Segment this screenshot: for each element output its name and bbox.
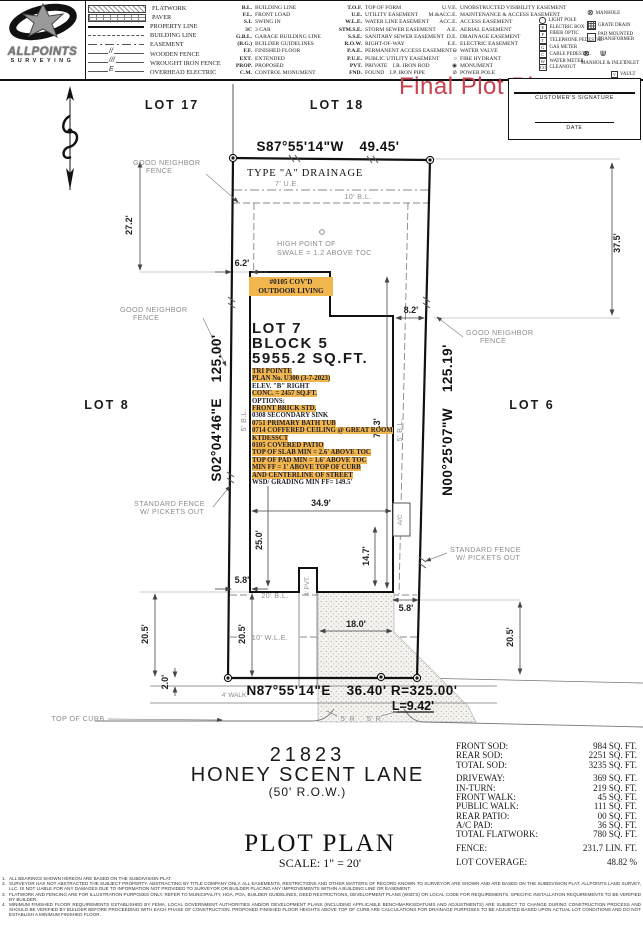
legend-abbrev-row: EXT. EXTENDED xyxy=(230,55,321,62)
lot-info-block: LOT 7 BLOCK 5 5955.2 SQ.FT. TRI POINTE P… xyxy=(252,321,384,487)
lot-area: 5955.2 SQ.FT. xyxy=(252,351,384,366)
legend-abbr: R.O.W. xyxy=(329,41,362,47)
option-line: 0714 COFFERED CEILING @ GREAT ROOM xyxy=(252,427,384,434)
option-text: CONC. = 2457 SQ.FT. xyxy=(252,390,317,397)
legend-label: INLET xyxy=(625,61,639,66)
dim-8-2: 8.2' xyxy=(404,305,419,315)
dim-20-5-mid: 20.5' xyxy=(237,624,247,644)
legend-label: VAULT xyxy=(620,72,636,77)
legend-abbr: U.E. xyxy=(329,12,362,18)
lot18-label: LOT 18 xyxy=(310,98,364,112)
arc-length-label: L=9.42' xyxy=(392,699,434,713)
high-point-marker xyxy=(320,230,325,235)
option-text: KTDESSCT xyxy=(252,435,288,442)
ue7-label: 7' U.E. xyxy=(275,179,299,188)
legend-label: ACCESS EASEMENT xyxy=(460,19,512,25)
standard-fence-right-2: W/ PICKETS OUT xyxy=(456,553,521,562)
note-item: 3. FLATWORK AND FENCING ARE FOR ILLUSTRA… xyxy=(2,892,641,902)
radius-5r-left: 5' R xyxy=(341,714,355,723)
legend-label: GRATE DRAIN xyxy=(598,23,630,28)
survey-notes: 1. ALL BEARINGS SHOWN HEREON ARE BASED O… xyxy=(2,876,641,918)
legend-abbr: P.U.E. xyxy=(329,56,362,62)
options-list: TRI POINTE PLAN No. U300 (3-7-2023) ELEV… xyxy=(252,368,384,487)
legend-label: PROPERTY LINE xyxy=(150,23,198,30)
note-number: 3. xyxy=(2,892,9,902)
legend-label: FINISHED FLOOR xyxy=(255,48,300,54)
legend-abbr-or-symbol: ⊖ xyxy=(419,48,457,54)
standard-fence-left-2: W/ PICKETS OUT xyxy=(140,507,205,516)
legend-abbrev-col1: B.L. BUILDING LINE F.L. FRONT LOAD S.I. … xyxy=(230,4,321,77)
linetype-swatch-icon xyxy=(88,5,146,13)
plot-plan-title-block: PLOT PLAN SCALE: 1" = 20' xyxy=(170,831,470,870)
legend-abbr: STM.S.E. xyxy=(329,27,362,33)
legend-label: PAD MOUNTEDTRANSFORMER xyxy=(598,32,634,42)
legend-label: WOODEN FENCE xyxy=(150,51,200,58)
area-summary-table: FRONT SOD: 984 SQ. FT. REAR SOD: 2251 SQ… xyxy=(456,742,637,867)
legend-abbr: (B.G.) xyxy=(230,41,252,47)
legend-panel: ALLPOINTS SURVEYING FLATWORK PAVER PROPE… xyxy=(0,0,643,81)
dim-25-0: 25.0' xyxy=(254,530,264,550)
option-line: CONC. = 2457 SQ.FT. xyxy=(252,390,384,397)
legend-label: FLATWORK xyxy=(152,5,186,12)
dim-20-5-right: 20.5' xyxy=(505,627,515,647)
legend-label: GARAGE BUILDING LINE xyxy=(255,34,321,40)
option-text: TRI POINTE xyxy=(252,368,292,375)
legend-abbrev-row: 3C 3 CAR xyxy=(230,26,321,33)
legend-label: TOP OF FORM xyxy=(365,5,401,11)
legend-label: MANHOLE xyxy=(596,11,620,16)
option-text: TOP OF SLAB MIN = 2.6' ABOVE TOC xyxy=(252,449,371,456)
legend-abbrev-row: C.M. CONTROL MONUMENT xyxy=(230,70,321,77)
signature-line[interactable] xyxy=(514,92,635,94)
walk4-label: 4' WALK xyxy=(222,692,247,699)
type-a-drainage-label: TYPE "A" DRAINAGE xyxy=(247,168,363,179)
signature-box: CUSTOMER'S SIGNATURE DATE xyxy=(508,78,641,140)
legend-label: UNOBSTRUCTED VISIBILITY EASEMENT xyxy=(460,5,566,11)
dim-37-5: 37.5' xyxy=(612,233,622,253)
legend-label: BUILDING LINE xyxy=(150,32,196,39)
table-row-value: 231.7 LIN. FT. xyxy=(583,844,637,853)
legend-label: PROPOSED xyxy=(255,63,284,69)
good-neighbor-fence-top-2: FENCE xyxy=(146,166,172,175)
note-item: 4. MINIMUM FINISHED FLOOR REQUIREMENTS E… xyxy=(2,902,641,918)
table-row: TOTAL SOD: 3235 SQ. FT. xyxy=(456,761,637,770)
legend-abbrev-row: (B.G.) BUILDER GUIDELINES xyxy=(230,40,321,47)
legend-label: UTILITY EASEMENT xyxy=(365,12,418,18)
legend-label: RIGHT-OF-WAY xyxy=(365,41,405,47)
option-text: WSD/ GRADING MIN FF= 149.5' xyxy=(252,479,352,486)
note-item: 2. SURVEYOR HAS NOT ABSTRACTED THE SUBJE… xyxy=(2,881,641,891)
high-point-label-1: HIGH POINT OF xyxy=(277,239,336,248)
plot-plan-scale: SCALE: 1" = 20' xyxy=(170,856,470,870)
option-line: 0308 SECONDARY SINK xyxy=(252,412,384,419)
bl5-right-label: 5' B.L. xyxy=(395,419,404,442)
legend-label: CONTROL MONUMENT xyxy=(255,70,316,76)
option-text: 0105 COVERED PATIO xyxy=(252,442,324,449)
date-label: DATE xyxy=(509,125,640,131)
lot6-label: LOT 6 xyxy=(509,398,554,412)
good-neighbor-fence-right-2: FENCE xyxy=(480,336,506,345)
top-of-curb-label: TOP OF CURB xyxy=(51,714,104,723)
legend-label: GAS METER xyxy=(550,45,578,50)
right-bearing-label: N00°25'07"W 125.19' xyxy=(440,344,455,496)
option-line: FRONT BRICK STD. xyxy=(252,405,384,412)
legend-linetypes: FLATWORK PAVER PROPERTY LINE BUILDING LI… xyxy=(88,4,221,77)
option-line: 0751 PRIMARY BATH TUB xyxy=(252,420,384,427)
legend-abbr: T.O.F. xyxy=(329,5,362,11)
legend-abbr-or-symbol: ○ xyxy=(419,56,457,62)
logo-name: ALLPOINTS xyxy=(0,46,85,58)
option-text: AND CENTERLINE OF STREET xyxy=(252,472,353,479)
note-text: MINIMUM FINISHED FLOOR REQUIREMENTS ESTA… xyxy=(9,902,641,918)
legend-abbr: S.S.E. xyxy=(329,34,362,40)
street-address: 21823 HONEY SCENT LANE (50' R.O.W.) xyxy=(150,746,465,799)
legend-abbr: PVT. xyxy=(329,63,362,69)
manhole-icon: ⊗ xyxy=(587,9,594,17)
legend-abbrev-row: S.I. SWING IN xyxy=(230,19,321,26)
manhole-inlet-legend: MANHOLE & INLET xyxy=(581,61,626,66)
company-logo: ALLPOINTS SURVEYING xyxy=(0,1,86,79)
table-row-value: 780 SQ. FT. xyxy=(593,830,637,839)
outdoor-living-tag: #0105 COV'D OUTDOOR LIVING xyxy=(249,277,333,296)
legend-label: WATER VALVE xyxy=(460,48,498,54)
dim-2-0: 2.0' xyxy=(160,675,170,690)
legend-label: FRONT LOAD xyxy=(255,12,290,18)
option-line: 0105 COVERED PATIO xyxy=(252,442,384,449)
ac-label: A/C xyxy=(397,514,404,525)
legend-abbr: B.L. xyxy=(230,5,252,11)
bl5-left-label: 5' B.L. xyxy=(239,409,248,432)
legend-abbr-or-symbol: ◉ xyxy=(419,63,457,69)
option-line: OPTIONS: xyxy=(252,398,384,405)
legend-label: EXTENDED xyxy=(255,56,285,62)
signature-label: CUSTOMER'S SIGNATURE xyxy=(509,95,640,101)
plot-plan-title: PLOT PLAN xyxy=(170,831,470,856)
linetype-swatch-icon xyxy=(88,50,144,58)
table-row-value: 48.82 % xyxy=(607,858,637,867)
high-point-label-2: SWALE = 1.2 ABOVE TOC xyxy=(277,248,372,257)
legend-abbrev-row: F.L. FRONT LOAD xyxy=(230,11,321,18)
bl20-label: 20' B.L. xyxy=(261,591,288,600)
option-line: AND CENTERLINE OF STREET xyxy=(252,472,384,479)
legend-symbol-icon xyxy=(539,17,546,24)
dim-6-2: 6.2' xyxy=(235,258,250,268)
option-line: TRI POINTE xyxy=(252,368,384,375)
inlet-icon: ⋓ xyxy=(600,49,607,58)
lot-number: LOT 7 xyxy=(252,321,384,336)
transformer-legend: PAD MOUNTEDTRANSFORMER xyxy=(587,32,634,42)
option-text: 0751 PRIMARY BATH TUB xyxy=(252,420,336,427)
option-text: TOP OF PAD MIN = 1.6' ABOVE TOC xyxy=(252,457,367,464)
dim-27-2: 27.2' xyxy=(124,215,134,235)
option-line: KTDESSCT xyxy=(252,435,384,442)
legend-label: ELECTRIC EASEMENT xyxy=(460,41,518,47)
legend-symbol-icon: CO xyxy=(539,64,547,71)
legend-abbrev-row: G.B.L. GARAGE BUILDING LINE xyxy=(230,33,321,40)
legend-abbr-or-symbol: E.E. xyxy=(419,41,457,47)
dim-5-8-left: 5.8' xyxy=(235,575,250,585)
legend-label: EASEMENT xyxy=(150,41,184,48)
legend-abbr: C.M. xyxy=(230,70,252,76)
dim-14-7: 14.7' xyxy=(361,546,371,566)
legend-abbr: PROP. xyxy=(230,63,252,69)
legend-label: PAVER xyxy=(152,14,171,21)
legend-abbrev-row: F.F. FINISHED FLOOR xyxy=(230,48,321,55)
linetype-swatch-icon xyxy=(88,23,144,31)
legend-label: BUILDER GUIDELINES xyxy=(255,41,314,47)
legend-label: CLEANOUT xyxy=(550,65,576,70)
vault-legend: V VAULT xyxy=(611,71,636,78)
lot8-label: LOT 8 xyxy=(84,398,129,412)
legend-linetype-row: BUILDING LINE xyxy=(88,31,221,40)
street-number: 21823 xyxy=(150,746,465,765)
note-number: 4. xyxy=(2,902,9,918)
option-text: MIN FF = 1' ABOVE TOP OF CURB xyxy=(252,464,361,471)
dim-34-9: 34.9' xyxy=(311,498,331,508)
legend-label: AERIAL EASEMENT xyxy=(460,27,512,33)
inlet-legend: INLET xyxy=(625,61,639,66)
legend-abbr: P.A.E. xyxy=(329,48,362,54)
option-text: ELEV. "B" RIGHT xyxy=(252,383,309,390)
option-line: MIN FF = 1' ABOVE TOP OF CURB xyxy=(252,464,384,471)
pvt-walk-label: 4' PVT. xyxy=(304,576,311,596)
linetype-swatch-icon xyxy=(88,32,144,40)
legend-label: ELECTRIC BOX xyxy=(550,25,585,30)
legend-abbr: F.F. xyxy=(230,48,252,54)
legend-label: 3 CAR xyxy=(255,27,271,33)
legend-abbr: W.L.E. xyxy=(329,19,362,25)
option-line: ELEV. "B" RIGHT xyxy=(252,383,384,390)
legend-abbr-or-symbol: M.&ACC.E. xyxy=(419,12,457,18)
option-line: TOP OF SLAB MIN = 2.6' ABOVE TOC xyxy=(252,449,384,456)
legend-abbr-or-symbol: ACC.E. xyxy=(419,19,457,25)
good-neighbor-fence-left-2: FENCE xyxy=(133,313,159,322)
legend-label: OVERHEAD ELECTRIC xyxy=(150,69,216,76)
option-text: 0714 COFFERED CEILING @ GREAT ROOM xyxy=(252,427,393,434)
legend-label: WATER METER xyxy=(550,59,584,64)
table-row-label: TOTAL SOD: xyxy=(456,761,507,770)
legend-abbrev-row: U.V.E. UNOBSTRUCTED VISIBILITY EASEMENT xyxy=(419,4,566,11)
option-line: PLAN No. U300 (3-7-2023) xyxy=(252,375,384,382)
legend-linetype-row: PROPERTY LINE xyxy=(88,22,221,31)
legend-label: BUILDING LINE xyxy=(255,5,296,11)
table-row-label: TOTAL FLATWORK: xyxy=(456,830,538,839)
wle-label: 10' W.L.E. xyxy=(252,633,289,642)
table-row: TOTAL FLATWORK: 780 SQ. FT. xyxy=(456,830,637,839)
option-text: 0308 SECONDARY SINK xyxy=(252,412,328,419)
logo-subtitle: SURVEYING xyxy=(0,58,85,64)
legend-abbr: G.B.L. xyxy=(230,34,252,40)
table-row: FENCE: 231.7 LIN. FT. xyxy=(456,844,637,853)
vault-icon: V xyxy=(611,71,618,78)
block-number: BLOCK 5 xyxy=(252,336,384,351)
legend-abbr-or-symbol: D.E. xyxy=(419,34,457,40)
legend-abbrev-row: B.L. BUILDING LINE xyxy=(230,4,321,11)
linetype-swatch-icon xyxy=(88,41,144,49)
legend-abbr-or-symbol: U.V.E. xyxy=(419,5,457,11)
note-text: FLATWORK AND FENCING ARE FOR ILLUSTRATIO… xyxy=(9,892,641,902)
legend-abbr-or-symbol: A.E. xyxy=(419,27,457,33)
legend-label: WROUGHT IRON FENCE xyxy=(150,60,221,67)
linetype-swatch-icon xyxy=(88,59,144,67)
pad-transformer-icon xyxy=(587,33,596,42)
north-arrow-icon xyxy=(63,86,77,190)
linetype-swatch-icon xyxy=(88,14,146,22)
rear-bearing-label: S87°55'14"W 49.45' xyxy=(256,139,399,154)
bl10-label: 10' B.L. xyxy=(344,192,371,201)
option-line: WSD/ GRADING MIN FF= 149.5' xyxy=(252,479,384,486)
legend-linetype-row: OVERHEAD ELECTRIC xyxy=(88,68,221,77)
dim-20-5-left: 20.5' xyxy=(140,624,150,644)
legend-abbr: 3C xyxy=(230,27,252,33)
legend-linetype-row: PAVER xyxy=(88,13,221,22)
street-row-width: (50' R.O.W.) xyxy=(150,785,465,799)
outdoor-living-line2: OUTDOOR LIVING xyxy=(249,287,333,296)
logo-star-icon xyxy=(3,1,83,43)
note-text: SURVEYOR HAS NOT ABSTRACTED THE SUBJECT … xyxy=(9,881,641,891)
dim-18-0: 18.0' xyxy=(346,619,366,629)
dim-5-8-right: 5.8' xyxy=(399,603,414,613)
legend-label: SWING IN xyxy=(255,19,281,25)
linetype-swatch-icon xyxy=(88,68,144,76)
grate-drain-icon xyxy=(587,21,596,30)
legend-linetype-row: FLATWORK xyxy=(88,4,221,13)
legend-label: FIRE HYDRANT xyxy=(460,56,501,62)
option-text: OPTIONS: xyxy=(252,398,285,405)
option-text: FRONT BRICK STD. xyxy=(252,405,316,412)
street-name: HONEY SCENT LANE xyxy=(150,765,465,785)
legend-abbr: F.L. xyxy=(230,12,252,18)
front-bearing-label: N87°55'14"E 36.40' R=325.00' xyxy=(247,683,458,698)
manhole-inlet-icons: ⊗ ⋓ xyxy=(583,49,606,58)
legend-label: DRAINAGE EASEMENT xyxy=(460,34,520,40)
legend-abbr: EXT. xyxy=(230,56,252,62)
outdoor-living-line1: #0105 COV'D xyxy=(249,278,333,287)
grate-drain-legend: GRATE DRAIN xyxy=(587,21,630,30)
option-text: PLAN No. U300 (3-7-2023) xyxy=(252,375,330,382)
option-line: TOP OF PAD MIN = 1.6' ABOVE TOC xyxy=(252,457,384,464)
table-row: LOT COVERAGE: 48.82 % xyxy=(456,858,637,867)
radius-5r-right: 5' R xyxy=(367,714,381,723)
manhole-icon: ⊗ xyxy=(583,49,590,58)
table-row-value: 3235 SQ. FT. xyxy=(589,761,637,770)
table-row-label: FENCE: xyxy=(456,844,487,853)
lot17-label: LOT 17 xyxy=(145,98,199,112)
manhole-legend: ⊗ MANHOLE xyxy=(587,9,620,17)
legend-label: FIBER OPTIC xyxy=(550,31,579,36)
table-row-label: LOT COVERAGE: xyxy=(456,858,527,867)
legend-label: MANHOLE & INLET xyxy=(581,61,626,66)
date-line[interactable] xyxy=(535,122,614,123)
legend-abbr: FND. xyxy=(329,70,362,76)
left-bearing-label: S02°04'46"E 125.00' xyxy=(209,334,224,481)
note-number: 2. xyxy=(2,881,9,891)
legend-label: MONUMENT xyxy=(460,63,493,69)
plot-plan-page: LOT 17 LOT 18 LOT 8 LOT 6 S87°55'14"W 49… xyxy=(0,0,643,927)
legend-abbr: S.I. xyxy=(230,19,252,25)
legend-label: LIGHT POLE xyxy=(549,18,577,23)
legend-abbrev-row: PROP. PROPOSED xyxy=(230,62,321,69)
